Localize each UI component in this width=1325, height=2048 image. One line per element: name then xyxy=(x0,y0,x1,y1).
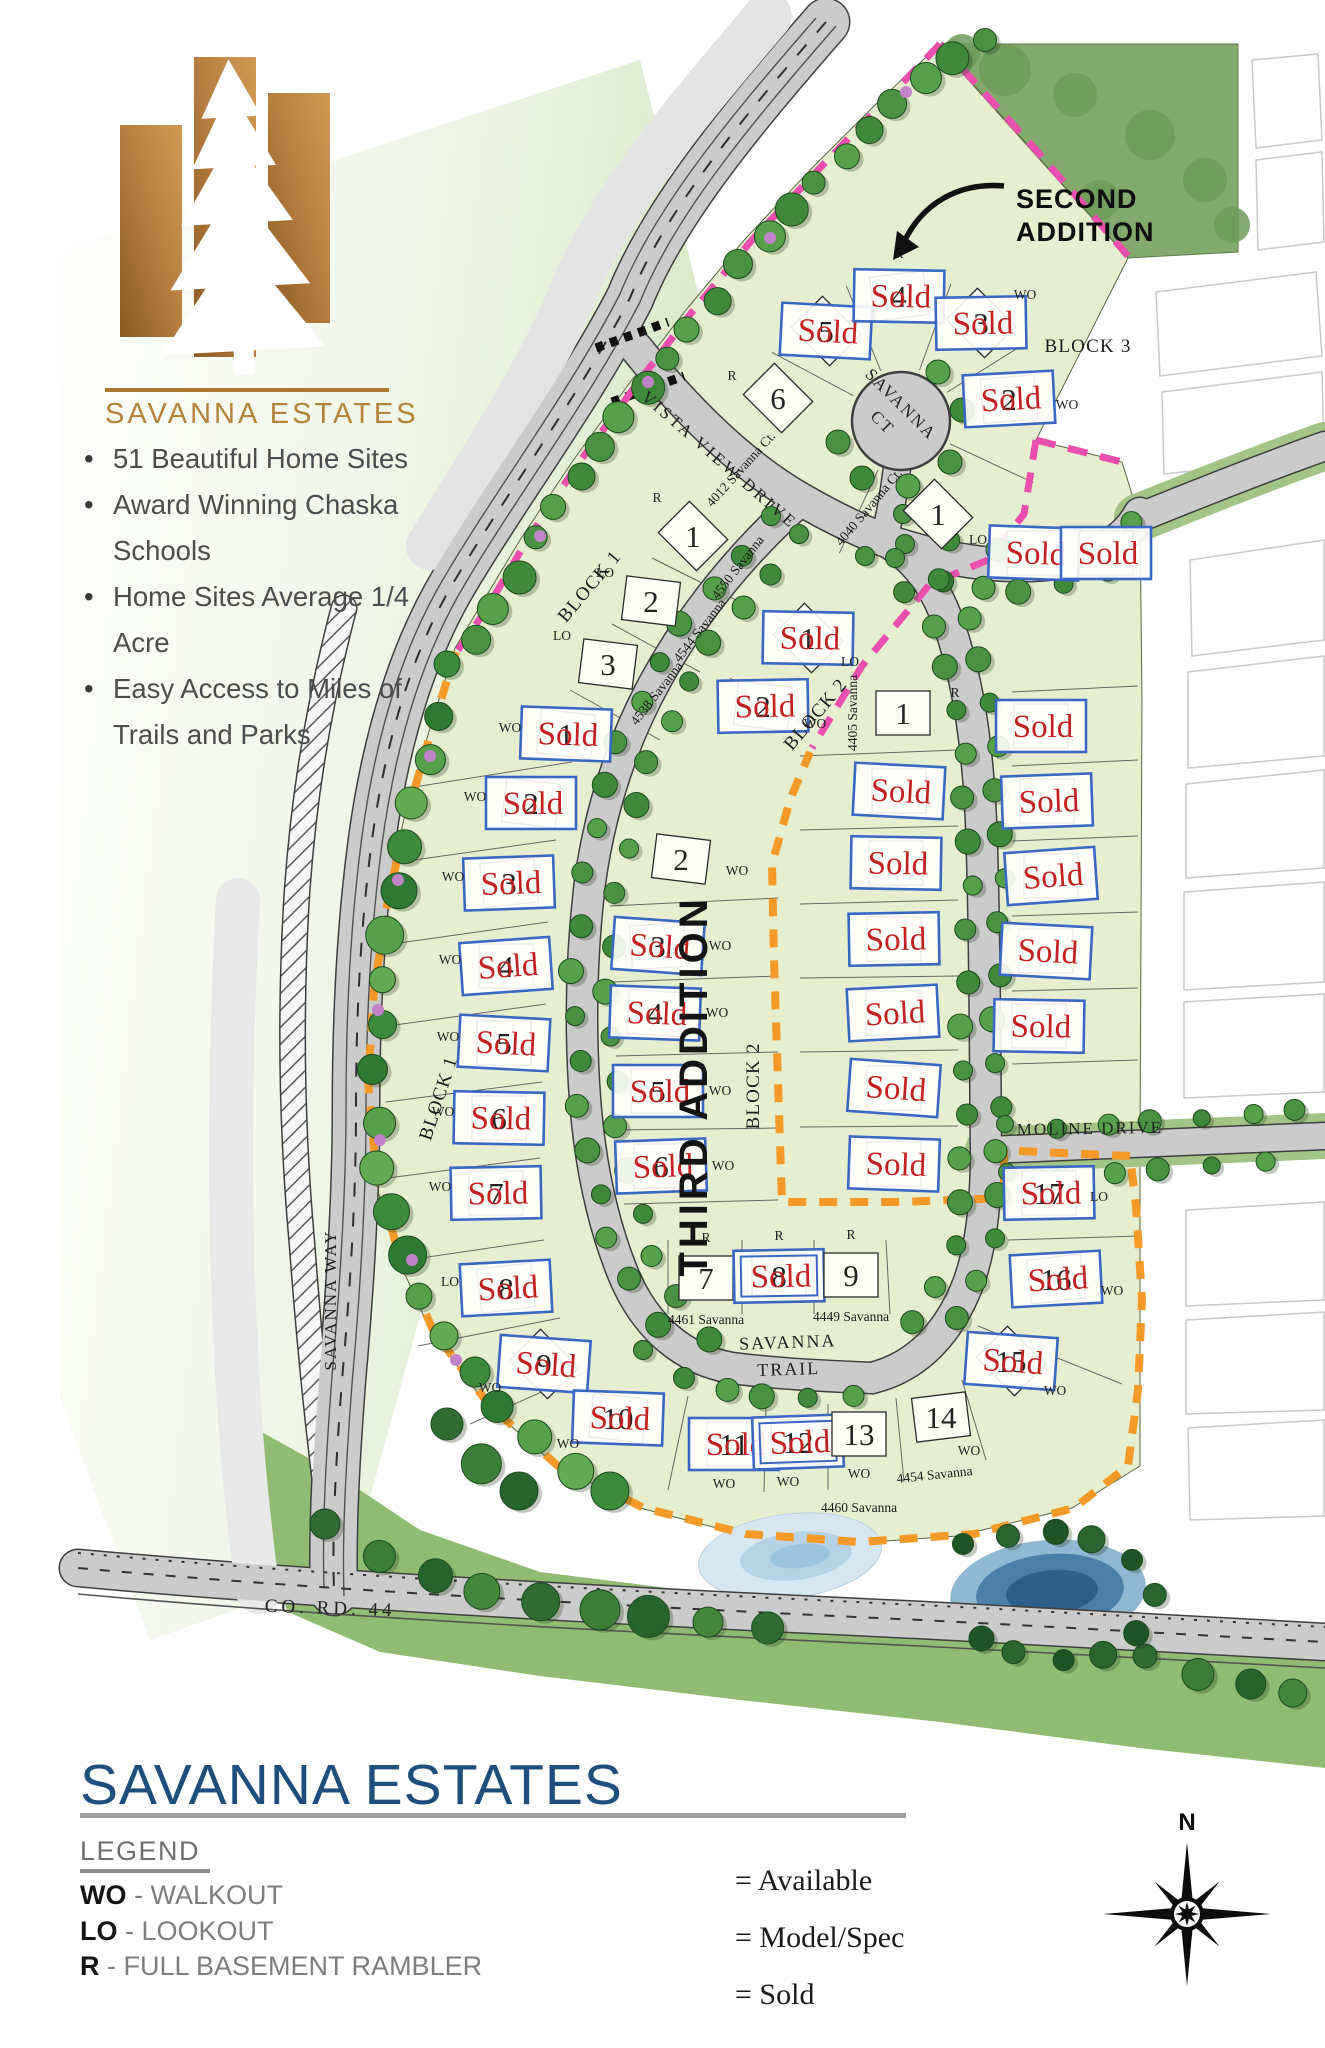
status-legend-item: = Sold xyxy=(735,1966,904,2023)
lot-marker-sold: Sold xyxy=(847,985,940,1042)
sold-label: Sold xyxy=(1022,857,1085,897)
svg-text:SAVANNA: SAVANNA xyxy=(739,1330,837,1353)
basement-type-label: WO xyxy=(464,789,487,804)
sold-label: Sold xyxy=(797,313,860,352)
future-parcels xyxy=(1156,54,1324,1520)
sold-label: Sold xyxy=(867,846,929,883)
header: SAVANNA ESTATES 51 Beautiful Home SitesA… xyxy=(75,50,445,700)
basement-type-label: R xyxy=(774,1228,783,1243)
lot-number: 14 xyxy=(926,1400,958,1435)
basement-type-label: R xyxy=(950,685,959,700)
basement-type-label: R xyxy=(846,1227,855,1242)
third-addition-label: THIRD ADDITION xyxy=(672,895,716,1276)
svg-text:CO. RD. 44: CO. RD. 44 xyxy=(264,1596,395,1622)
legend-items: WO - WALKOUTLO - LOOKOUTR - FULL BASEMEN… xyxy=(80,1878,482,1985)
status-legend-item: = Model/Spec xyxy=(735,1909,904,1966)
sold-label: Sold xyxy=(1018,783,1080,821)
lot-address: 4449 Savanna xyxy=(813,1309,889,1324)
lot-number: 1 xyxy=(930,497,946,532)
north-label: N xyxy=(1178,1809,1195,1836)
sold-label: Sold xyxy=(477,947,540,987)
lot-marker-sold: Sold xyxy=(996,700,1086,752)
legend-underline xyxy=(80,1869,210,1873)
feature-bullet: Easy Access to Miles of Trails and Parks xyxy=(75,666,427,758)
sold-label: Sold xyxy=(1013,709,1074,745)
brand-name: SAVANNA ESTATES xyxy=(105,398,419,431)
svg-text:ADDITION: ADDITION xyxy=(1016,217,1155,247)
basement-type-label: LO xyxy=(1090,1189,1108,1204)
basement-type-label: WO xyxy=(439,952,462,967)
status-legend: = Available= Model/Spec= Sold xyxy=(735,1852,904,2023)
svg-text:SAVANNA WAY: SAVANNA WAY xyxy=(321,1230,340,1371)
lot-number: 1 xyxy=(685,519,701,554)
lot-marker-sold: Sold xyxy=(1061,527,1151,579)
basement-type-label: WO xyxy=(1101,1283,1124,1298)
basement-type-label: WO xyxy=(726,863,749,878)
block-label: BLOCK 2 xyxy=(743,1042,764,1129)
sold-label: Sold xyxy=(514,1345,577,1385)
sold-label: Sold xyxy=(1017,933,1080,972)
pine-tree-logo-icon xyxy=(118,55,358,375)
lot-marker-sold: Sold xyxy=(1004,847,1097,905)
lot-marker-sold: Sold xyxy=(847,1059,940,1117)
sold-label: Sold xyxy=(1005,535,1067,573)
legend-item: R - FULL BASEMENT RAMBLER xyxy=(80,1949,482,1985)
sold-label: Sold xyxy=(1027,1260,1090,1299)
basement-type-label: WO xyxy=(557,1436,580,1451)
basement-type-label: R xyxy=(727,368,736,383)
legend-item: LO - LOOKOUT xyxy=(80,1914,482,1950)
lot-address: 4461 Savanna xyxy=(668,1312,744,1327)
sold-label: Sold xyxy=(477,1269,540,1308)
sold-label: Sold xyxy=(980,380,1043,419)
svg-text:MOLINE DRIVE: MOLINE DRIVE xyxy=(1017,1118,1164,1140)
basement-type-label: WO xyxy=(442,869,465,884)
lot-number: 2 xyxy=(643,584,659,619)
feature-bullet: 51 Beautiful Home Sites xyxy=(75,436,427,482)
lot-marker-sold: 3SoldWO xyxy=(936,287,1037,358)
sold-label: Sold xyxy=(864,1069,927,1109)
brand-divider xyxy=(105,388,389,392)
sold-label: Sold xyxy=(981,1342,1044,1382)
sold-label: Sold xyxy=(475,1025,538,1064)
block-label: BLOCK 3 xyxy=(1044,336,1131,357)
basement-type-label: R xyxy=(652,490,661,505)
sold-label: Sold xyxy=(503,786,564,822)
svg-text:SECOND: SECOND xyxy=(1016,184,1138,214)
basement-type-label: WO xyxy=(429,1179,452,1194)
lot-marker-sold: Sold xyxy=(1000,923,1093,980)
lot-marker-sold: Sold xyxy=(1001,773,1093,828)
lot-marker-sold: Sold xyxy=(848,1136,940,1191)
sold-label: Sold xyxy=(480,865,542,903)
lot-number: 2 xyxy=(673,842,689,877)
feature-bullet: Home Sites Average 1/4 Acre xyxy=(75,574,427,666)
sold-label: Sold xyxy=(779,621,841,658)
lot-marker-sold: 1SoldLO xyxy=(763,603,860,672)
status-legend-item: = Available xyxy=(735,1852,904,1909)
lot-marker-sold: Sold xyxy=(994,999,1085,1053)
sold-label: Sold xyxy=(864,994,927,1033)
sold-label: Sold xyxy=(734,688,796,725)
sold-label: Sold xyxy=(769,1424,831,1462)
basement-type-label: WO xyxy=(848,1466,871,1481)
svg-text:TRAIL: TRAIL xyxy=(757,1358,821,1380)
basement-type-label: LO xyxy=(841,654,859,669)
basement-type-label: WO xyxy=(1014,287,1037,302)
sold-label: Sold xyxy=(1010,1009,1072,1046)
sold-label: Sold xyxy=(470,1101,532,1138)
lot-address: 4460 Savanna xyxy=(821,1500,897,1515)
lot-number: 9 xyxy=(843,1258,859,1293)
sold-label: Sold xyxy=(537,716,599,754)
basement-type-label: WO xyxy=(1044,1383,1067,1398)
sold-label: Sold xyxy=(865,1146,927,1184)
basement-type-label: WO xyxy=(479,1380,502,1395)
street-label: CO. RD. 44 xyxy=(264,1596,395,1622)
basement-type-label: WO xyxy=(777,1474,800,1489)
sold-label: Sold xyxy=(589,1400,651,1438)
sold-label: Sold xyxy=(870,773,933,812)
sold-label: Sold xyxy=(750,1258,812,1295)
lot-number: 13 xyxy=(844,1417,875,1452)
sold-label: Sold xyxy=(865,921,927,958)
feature-bullet: Award Winning Chaska Schools xyxy=(75,482,427,574)
sold-label: Sold xyxy=(870,279,932,316)
basement-type-label: WO xyxy=(1056,397,1079,412)
lot-marker-sold: 17SoldLO xyxy=(1004,1166,1109,1220)
basement-type-label: LO xyxy=(969,532,987,547)
basement-type-label: WO xyxy=(958,1443,981,1458)
sold-label: Sold xyxy=(1020,1175,1082,1212)
title-underline xyxy=(80,1813,906,1818)
basement-type-label: WO xyxy=(499,720,522,735)
legend-heading: LEGEND xyxy=(80,1836,200,1867)
lot-marker-sold: 10SoldWO xyxy=(557,1390,664,1451)
lot-number: 1 xyxy=(895,696,911,731)
legend-item: WO - WALKOUT xyxy=(80,1878,482,1914)
basement-type-label: WO xyxy=(713,1476,736,1491)
lot-marker-sold: Sold xyxy=(849,912,940,966)
plat-title: SAVANNA ESTATES xyxy=(80,1752,623,1818)
sold-label: Sold xyxy=(952,305,1014,342)
feature-bullet-list: 51 Beautiful Home SitesAward Winning Cha… xyxy=(75,436,427,758)
lot-number: 3 xyxy=(600,647,616,682)
lot-marker-sold: Sold xyxy=(853,763,946,820)
street-label: MOLINE DRIVE xyxy=(1017,1118,1164,1140)
lot-marker-sold: Sold xyxy=(851,836,942,890)
sold-label: Sold xyxy=(1078,536,1139,572)
street-label: SAVANNA WAY xyxy=(321,1230,340,1371)
lot-number: 6 xyxy=(770,381,786,416)
basement-type-label: LO xyxy=(553,628,571,643)
basement-type-label: LO xyxy=(441,1274,459,1289)
compass-rose-icon: N xyxy=(1103,1809,1271,1986)
basement-type-label: WO xyxy=(437,1029,460,1044)
sold-label: Sold xyxy=(467,1175,529,1212)
